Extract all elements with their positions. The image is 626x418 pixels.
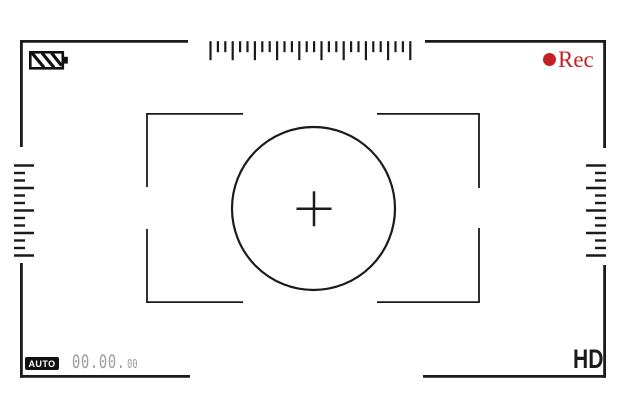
hd-quality-label[interactable]: HD xyxy=(573,346,603,373)
ruler-right xyxy=(586,166,606,256)
rec-dot-icon xyxy=(543,53,556,66)
timecode-frames: 00 xyxy=(127,358,137,370)
ruler-left xyxy=(14,166,34,256)
rec-label: Rec xyxy=(558,48,594,71)
camera-viewfinder: Rec AUTO 00.00. 00 HD xyxy=(0,0,626,418)
battery-icon xyxy=(30,52,68,68)
rec-indicator[interactable]: Rec xyxy=(543,48,594,71)
ruler-top xyxy=(211,41,411,60)
timecode-display: 00.00. 00 xyxy=(72,353,138,372)
auto-mode-badge[interactable]: AUTO xyxy=(25,357,59,370)
timecode-main: 00.00. xyxy=(72,353,126,372)
crosshair-icon xyxy=(297,191,332,226)
